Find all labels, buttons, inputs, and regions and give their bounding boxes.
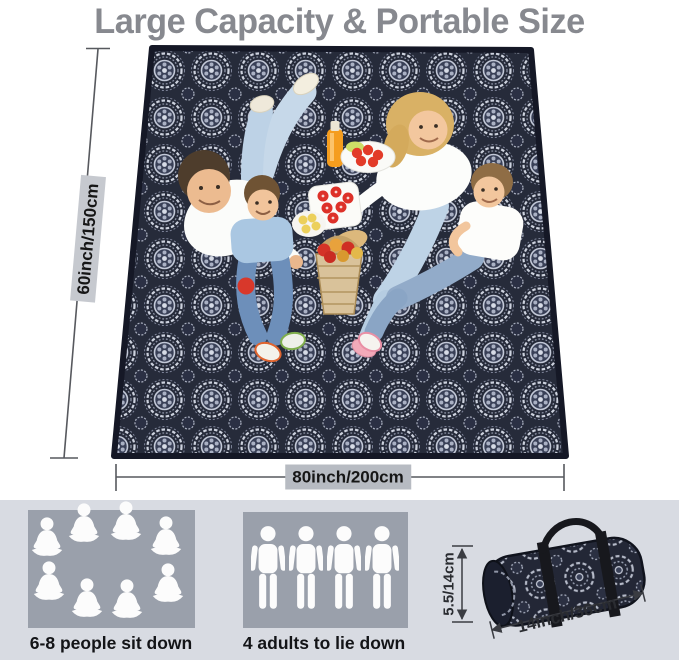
lie-capacity-caption: 4 adults to lie down	[243, 633, 405, 654]
product-infographic: Large Capacity & Portable Size 60inch/15…	[0, 0, 679, 660]
bag-height-label: 5.5/14cm	[442, 552, 457, 615]
apple	[238, 278, 255, 295]
apple-basket	[316, 238, 363, 314]
juice-bottle	[327, 129, 343, 167]
page-title: Large Capacity & Portable Size	[7, 2, 672, 42]
sit-capacity-caption: 6-8 people sit down	[30, 633, 192, 654]
blanket-width-label: 80inch/200cm	[285, 465, 411, 490]
infographic-scene	[0, 0, 679, 660]
